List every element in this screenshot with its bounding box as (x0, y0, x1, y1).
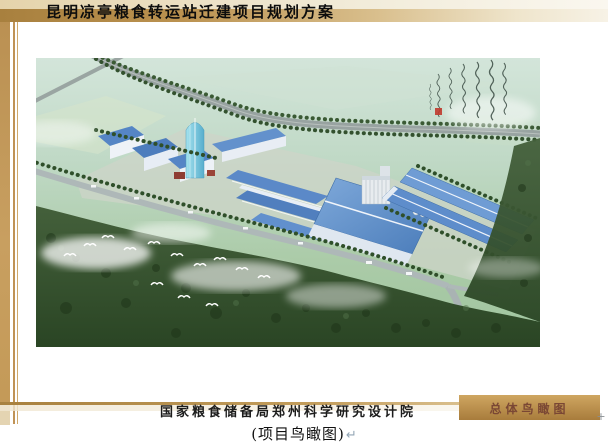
document-page: 昆明凉亭粮食转运站迁建项目规划方案 (0, 0, 608, 448)
aerial-rendering-image[interactable] (36, 58, 540, 347)
anchor-mark: + (595, 411, 607, 423)
page-title: 昆明凉亭粮食转运站迁建项目规划方案 (46, 2, 335, 22)
section-tab-label: 总体鸟瞰图 (489, 402, 569, 416)
red-seal (435, 108, 442, 115)
section-tab: 总体鸟瞰图 (459, 395, 600, 420)
paragraph-return-mark: ↵ (346, 428, 357, 443)
caption-line: (项目鸟瞰图)↵ (0, 423, 608, 445)
glass-tower (186, 118, 204, 178)
aerial-rendering-canvas (36, 58, 540, 347)
template-left-bar (0, 0, 10, 402)
caption-text: (项目鸟瞰图) (251, 425, 345, 443)
template-vertical-rule-outer (13, 0, 15, 424)
template-vertical-rule-inner (17, 0, 18, 424)
